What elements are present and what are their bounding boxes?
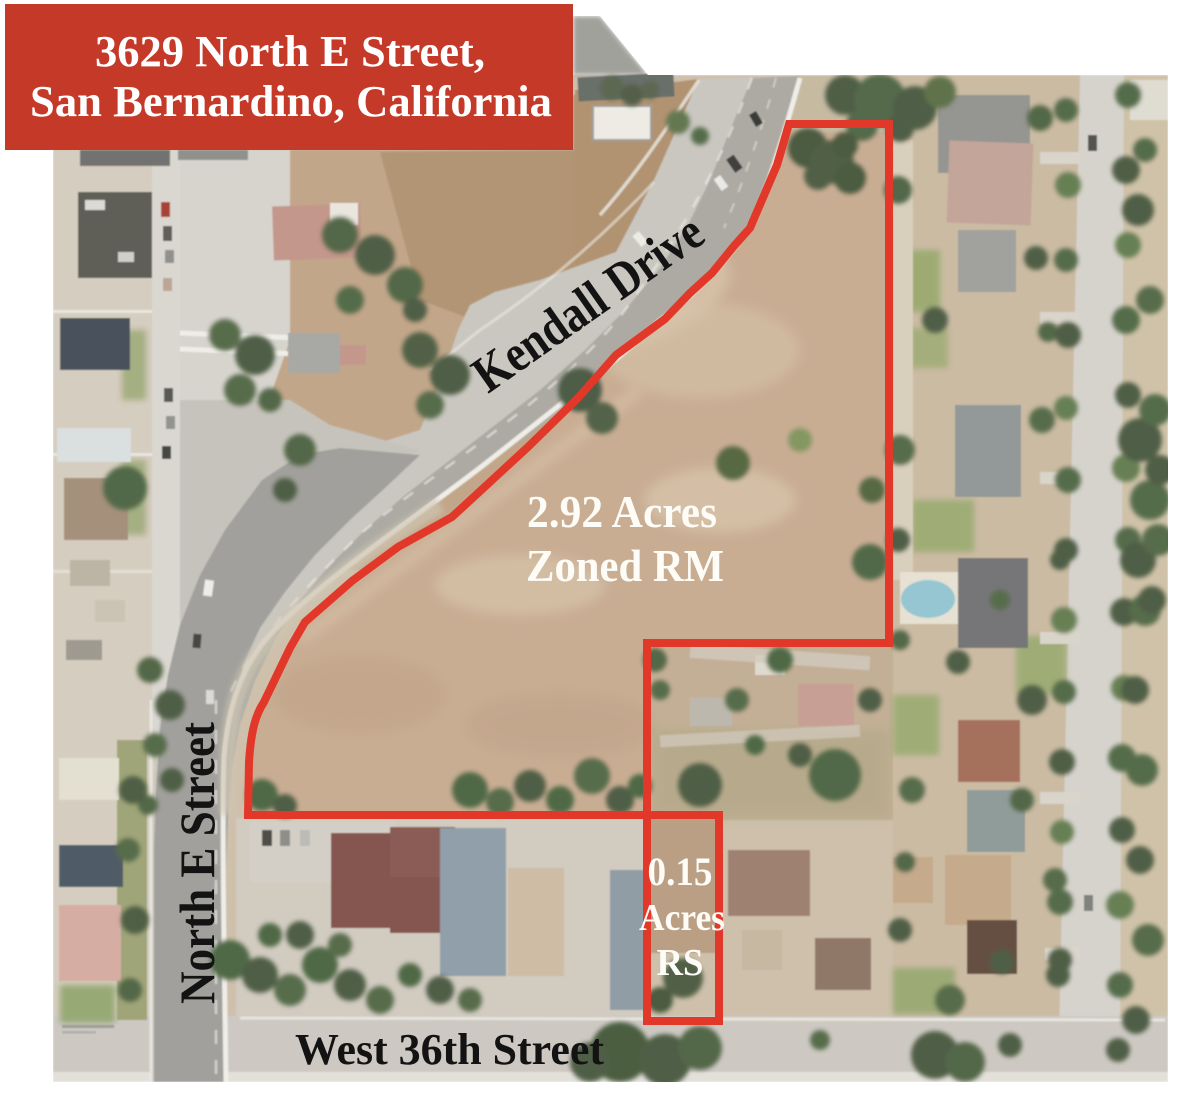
svg-text:Acres: Acres (639, 897, 725, 939)
svg-text:Zoned RM: Zoned RM (526, 540, 724, 591)
svg-text:RS: RS (657, 942, 704, 984)
svg-text:San Bernardino, California: San Bernardino, California (30, 76, 552, 126)
svg-text:3629 North E Street,: 3629 North E Street, (95, 26, 485, 76)
svg-text:2.92 Acres: 2.92 Acres (527, 486, 717, 537)
svg-text:0.15: 0.15 (648, 849, 713, 894)
svg-text:North E Street: North E Street (169, 722, 225, 1004)
svg-text:West 36th Street: West 36th Street (295, 1025, 604, 1074)
